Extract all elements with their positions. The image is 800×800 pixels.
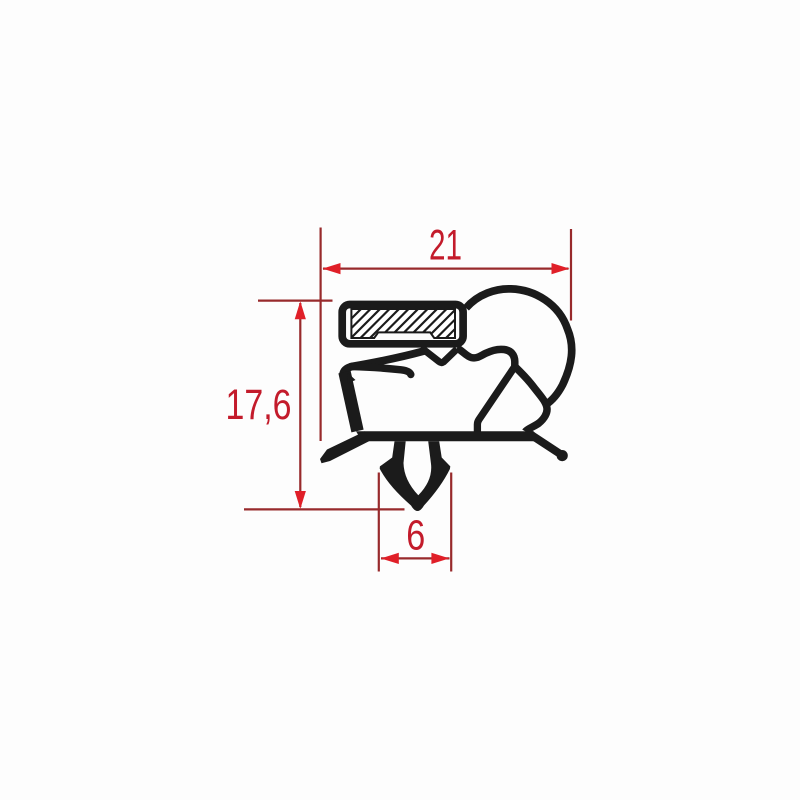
svg-text:6: 6 — [406, 512, 425, 560]
svg-text:17,6: 17,6 — [226, 381, 292, 429]
svg-text:21: 21 — [429, 221, 462, 269]
